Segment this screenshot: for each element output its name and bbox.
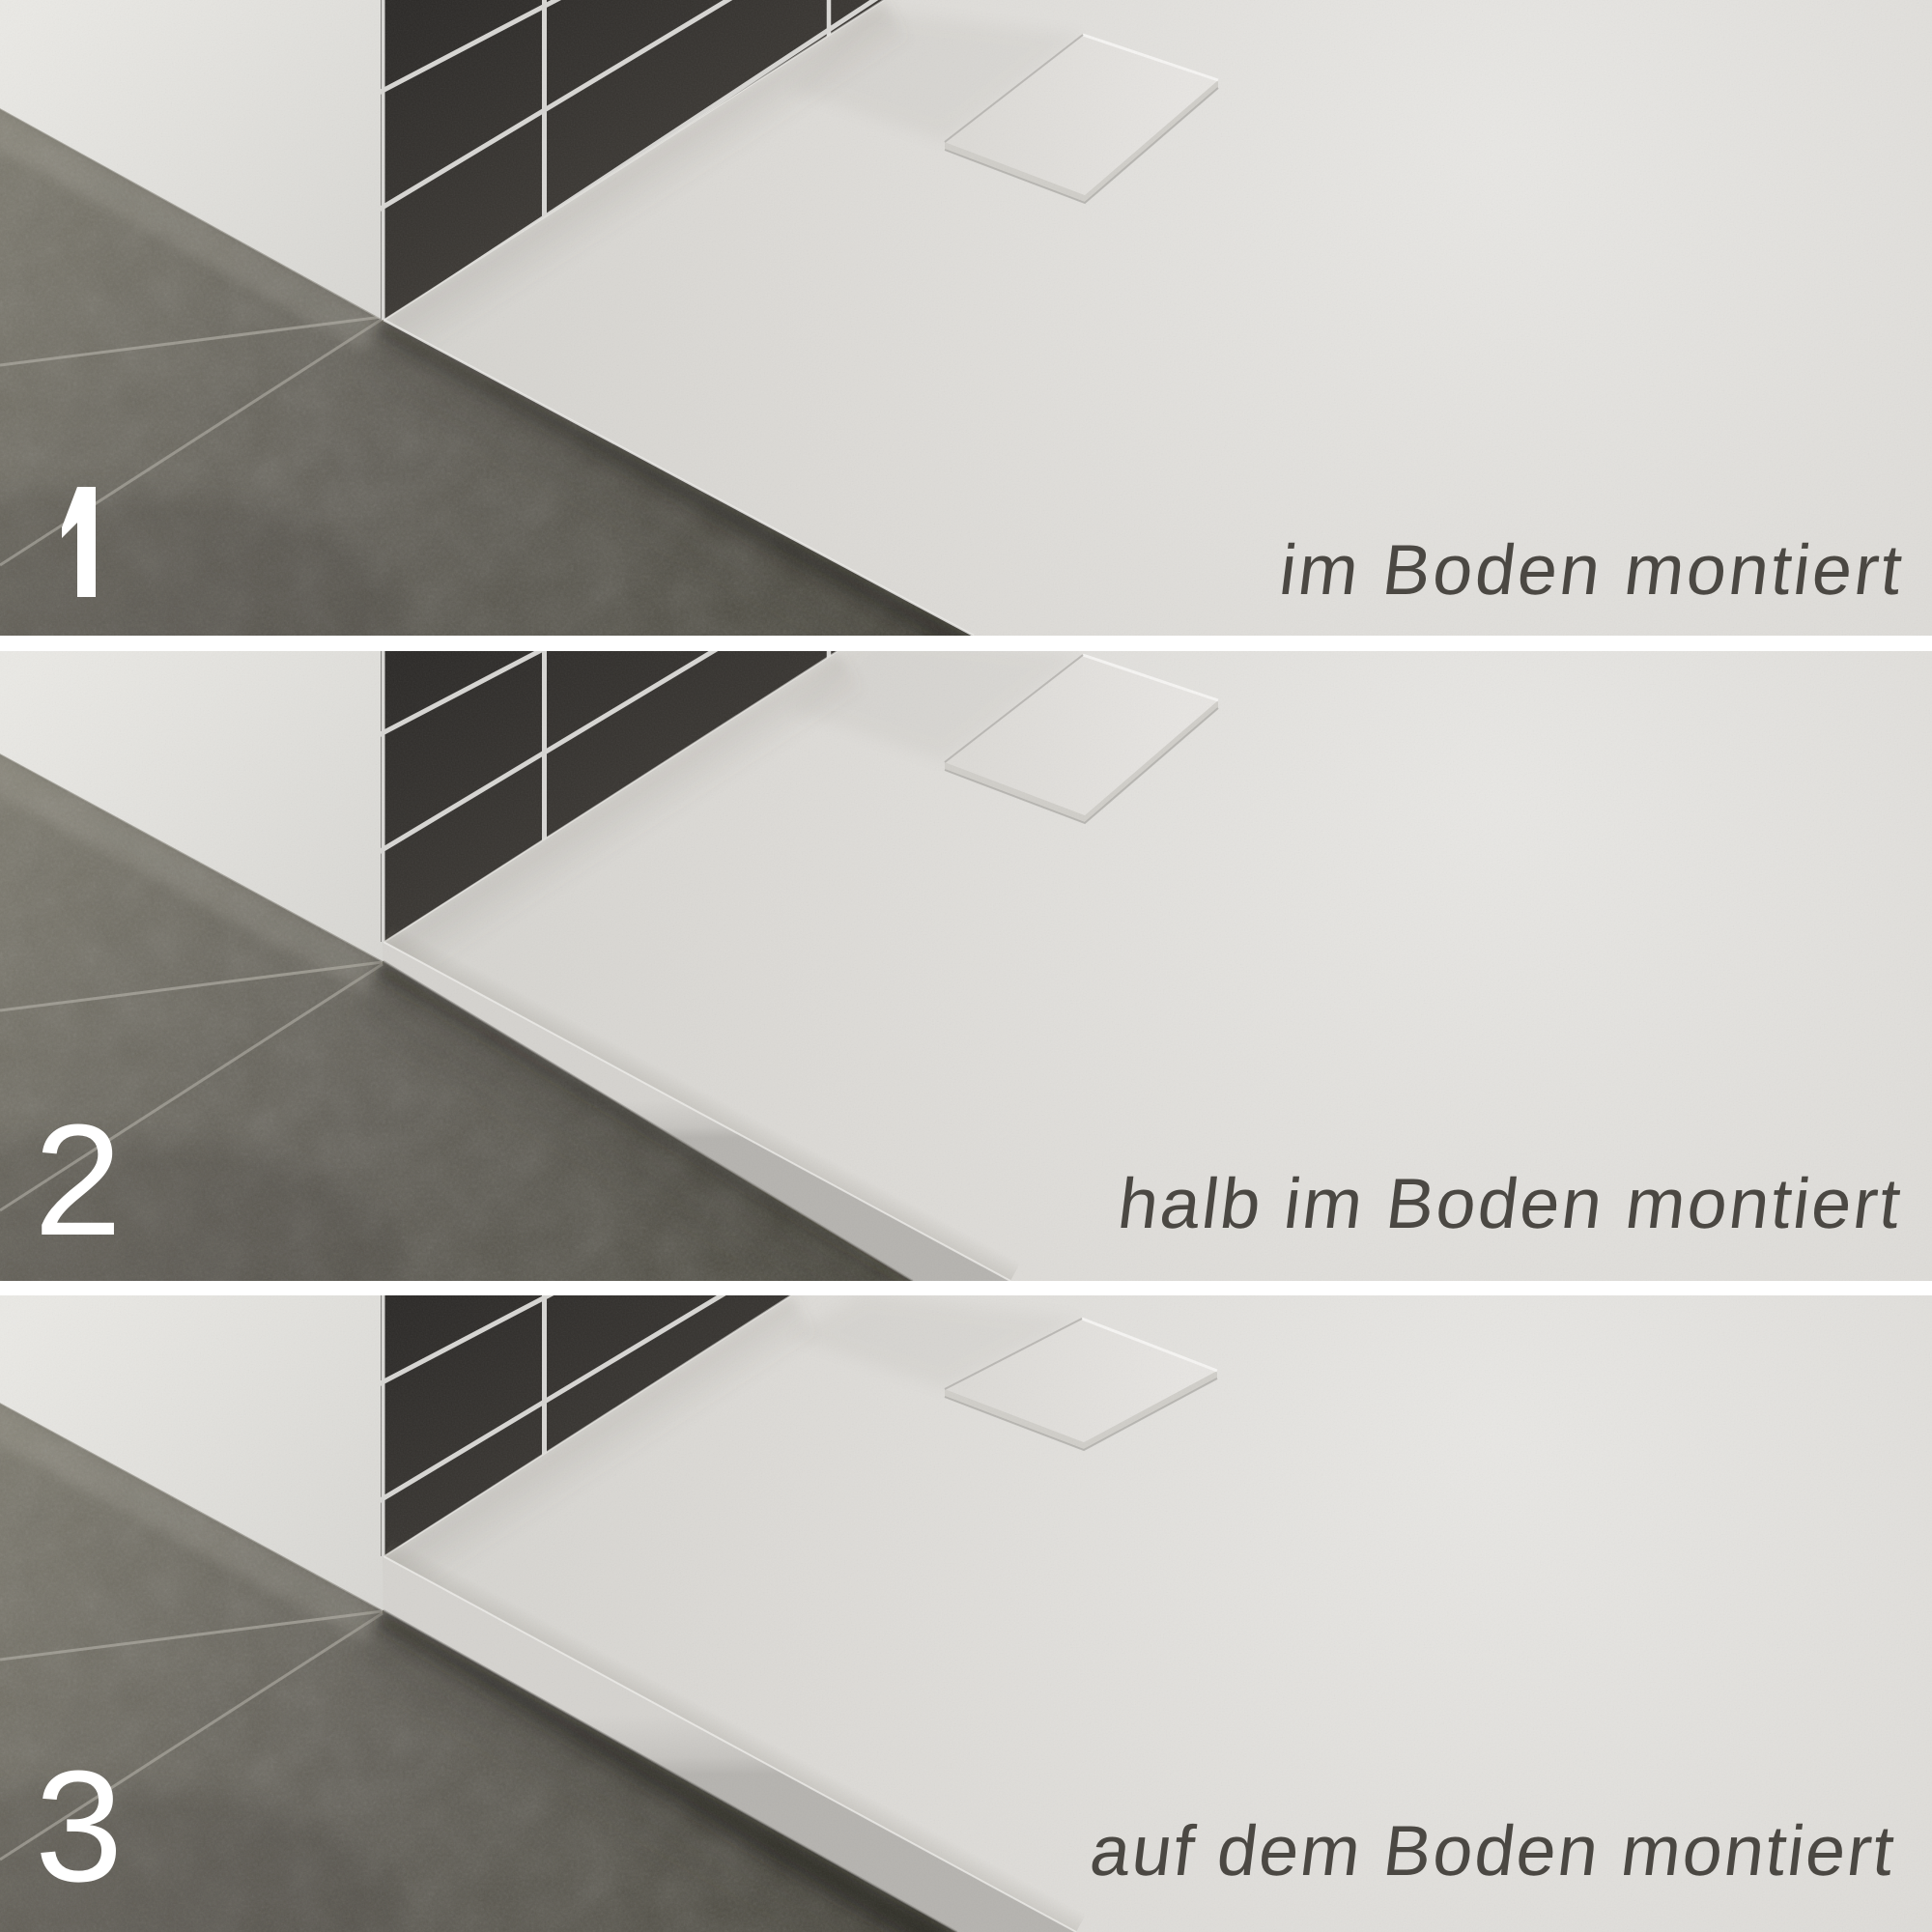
svg-text:2: 2: [34, 1092, 122, 1268]
svg-text:auf dem Boden montiert: auf dem Boden montiert: [1086, 1810, 1900, 1890]
svg-text:3: 3: [35, 1738, 123, 1915]
svg-text:im Boden montiert: im Boden montiert: [1275, 529, 1909, 610]
svg-text:halb im Boden montiert: halb im Boden montiert: [1114, 1163, 1907, 1243]
